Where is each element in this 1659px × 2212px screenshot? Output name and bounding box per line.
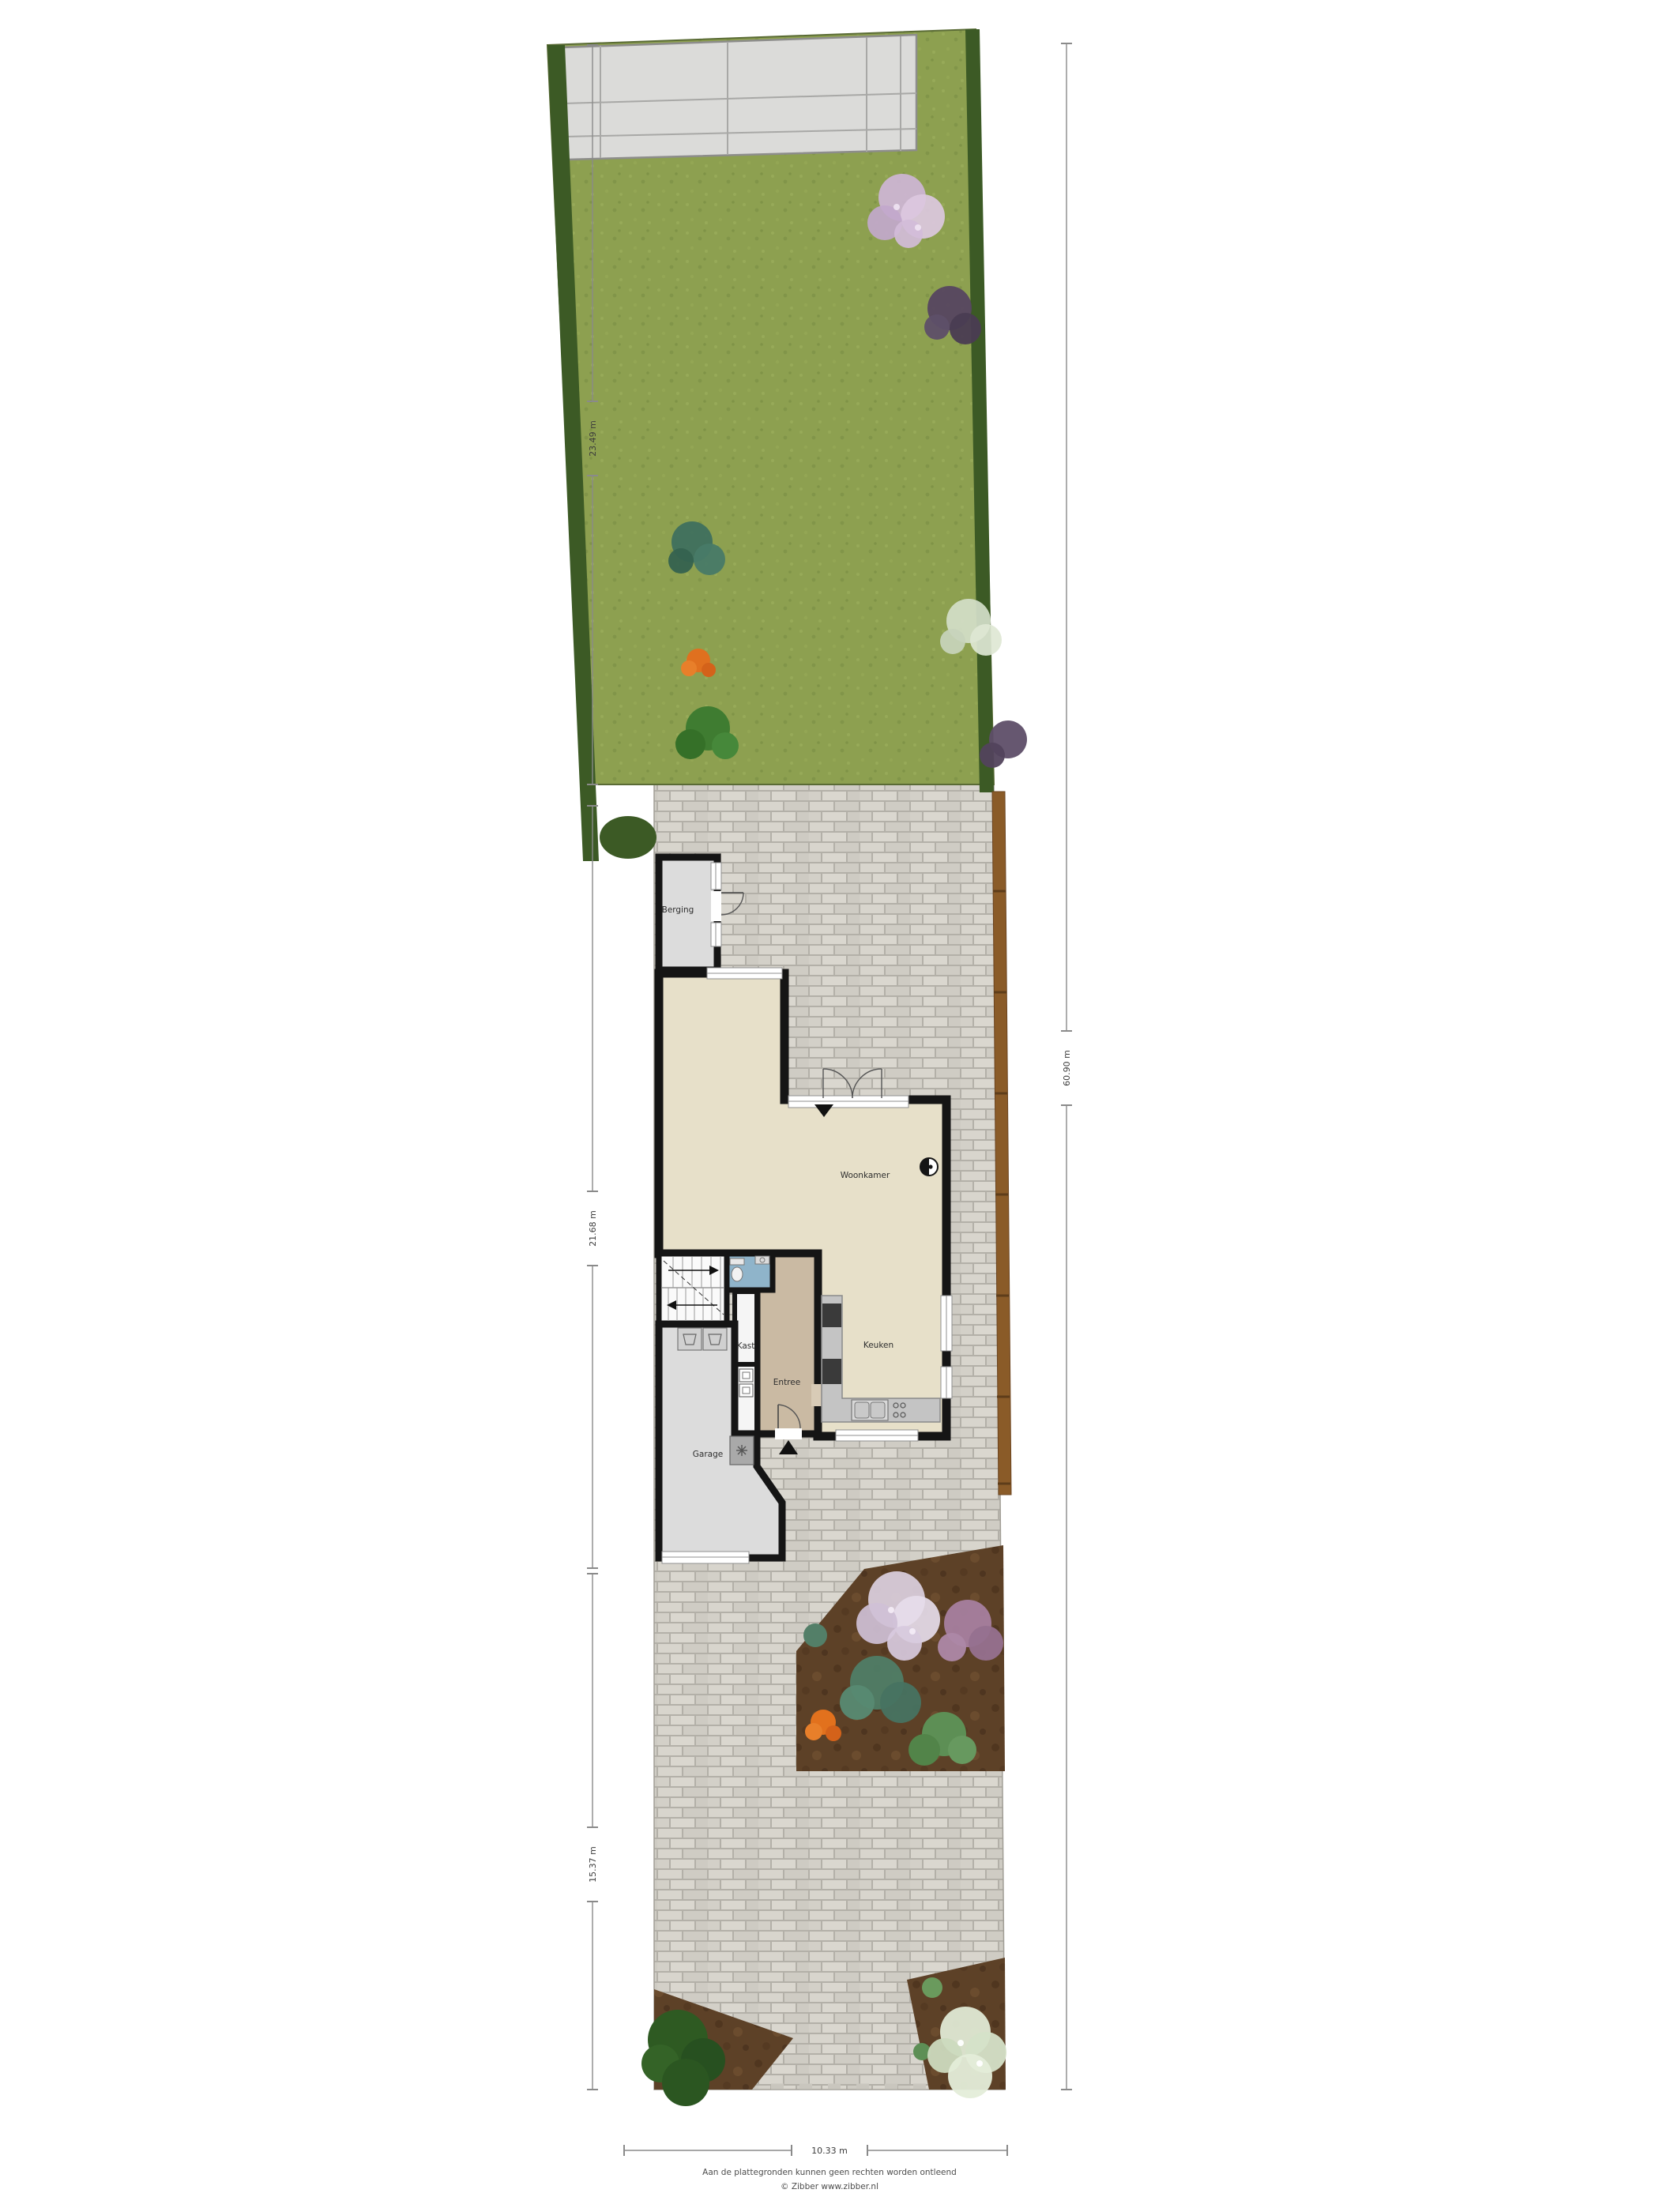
dim-bottom-width: 10.33 m xyxy=(811,2146,848,2156)
hand-basin-icon xyxy=(755,1256,769,1264)
dryer-icon xyxy=(703,1328,727,1350)
dimension-left-house: 21.68 m xyxy=(587,806,598,1568)
kitchen-sink-icon xyxy=(852,1400,888,1420)
dim-left-front: 15.37 m xyxy=(588,1846,598,1883)
site-plan-page: Berging Woonkamer Keuken Entree Kast Gar… xyxy=(0,0,1659,2212)
dimension-bottom-width: 10.33 m xyxy=(624,2145,1007,2156)
label-entree: Entree xyxy=(773,1378,800,1387)
dim-left-garden: 23.49 m xyxy=(588,420,598,457)
dimension-left-front: 15.37 m xyxy=(587,1574,598,2090)
hedge-left-corner xyxy=(600,816,656,859)
slab-terrace xyxy=(562,35,916,160)
dim-right-total: 60.90 m xyxy=(1062,1050,1072,1086)
site-plan-canvas: Berging Woonkamer Keuken Entree Kast Gar… xyxy=(0,0,1659,2212)
label-garage: Garage xyxy=(693,1450,723,1459)
label-woonkamer: Woonkamer xyxy=(841,1171,890,1180)
fireplace-icon xyxy=(920,1158,938,1176)
footer-credit: © Zibber www.zibber.nl xyxy=(781,2182,878,2191)
appliance-2 xyxy=(822,1359,841,1384)
washer-icon xyxy=(678,1328,702,1350)
dimension-right-total: 60.90 m xyxy=(1061,43,1072,2090)
appliance-1 xyxy=(822,1303,841,1327)
staircase xyxy=(659,1254,727,1324)
label-berging: Berging xyxy=(662,905,694,915)
dim-left-house: 21.68 m xyxy=(588,1210,598,1247)
boiler-icon xyxy=(730,1436,754,1465)
footer-disclaimer: Aan de plattegronden kunnen geen rechten… xyxy=(702,2168,957,2177)
label-keuken: Keuken xyxy=(863,1341,893,1350)
label-kast: Kast xyxy=(737,1341,755,1351)
